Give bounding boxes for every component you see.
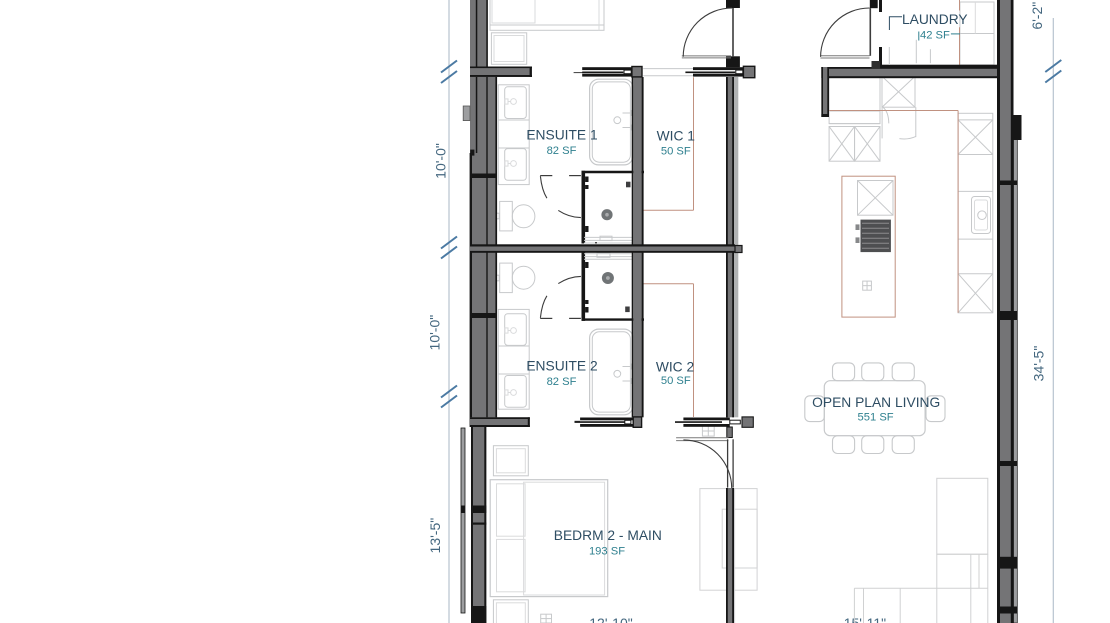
svg-text:12'-10": 12'-10" [589,615,632,623]
svg-text:WIC 1: WIC 1 [657,129,695,144]
svg-text:ENSUITE 1: ENSUITE 1 [526,128,597,143]
svg-text:82 SF: 82 SF [547,376,577,388]
svg-text:OPEN PLAN LIVING: OPEN PLAN LIVING [812,395,940,410]
svg-text:42 SF: 42 SF [920,29,950,41]
svg-text:50 SF: 50 SF [661,375,691,387]
svg-text:6'-2": 6'-2" [1029,2,1045,30]
svg-text:ENSUITE 2: ENSUITE 2 [526,359,597,374]
svg-text:34'-5": 34'-5" [1030,346,1046,382]
svg-text:10'-0": 10'-0" [427,315,443,351]
svg-text:BEDRM 2 - MAIN: BEDRM 2 - MAIN [554,528,662,543]
svg-text:LAUNDRY: LAUNDRY [902,12,968,27]
svg-text:13'-5": 13'-5" [427,518,443,554]
svg-text:82 SF: 82 SF [547,145,577,157]
svg-text:551 SF: 551 SF [858,412,894,424]
svg-text:50 SF: 50 SF [661,145,691,157]
svg-text:193 SF: 193 SF [589,545,625,557]
svg-text:15'-11": 15'-11" [844,615,886,623]
svg-text:10'-0": 10'-0" [432,143,448,179]
svg-text:WIC 2: WIC 2 [656,360,694,375]
